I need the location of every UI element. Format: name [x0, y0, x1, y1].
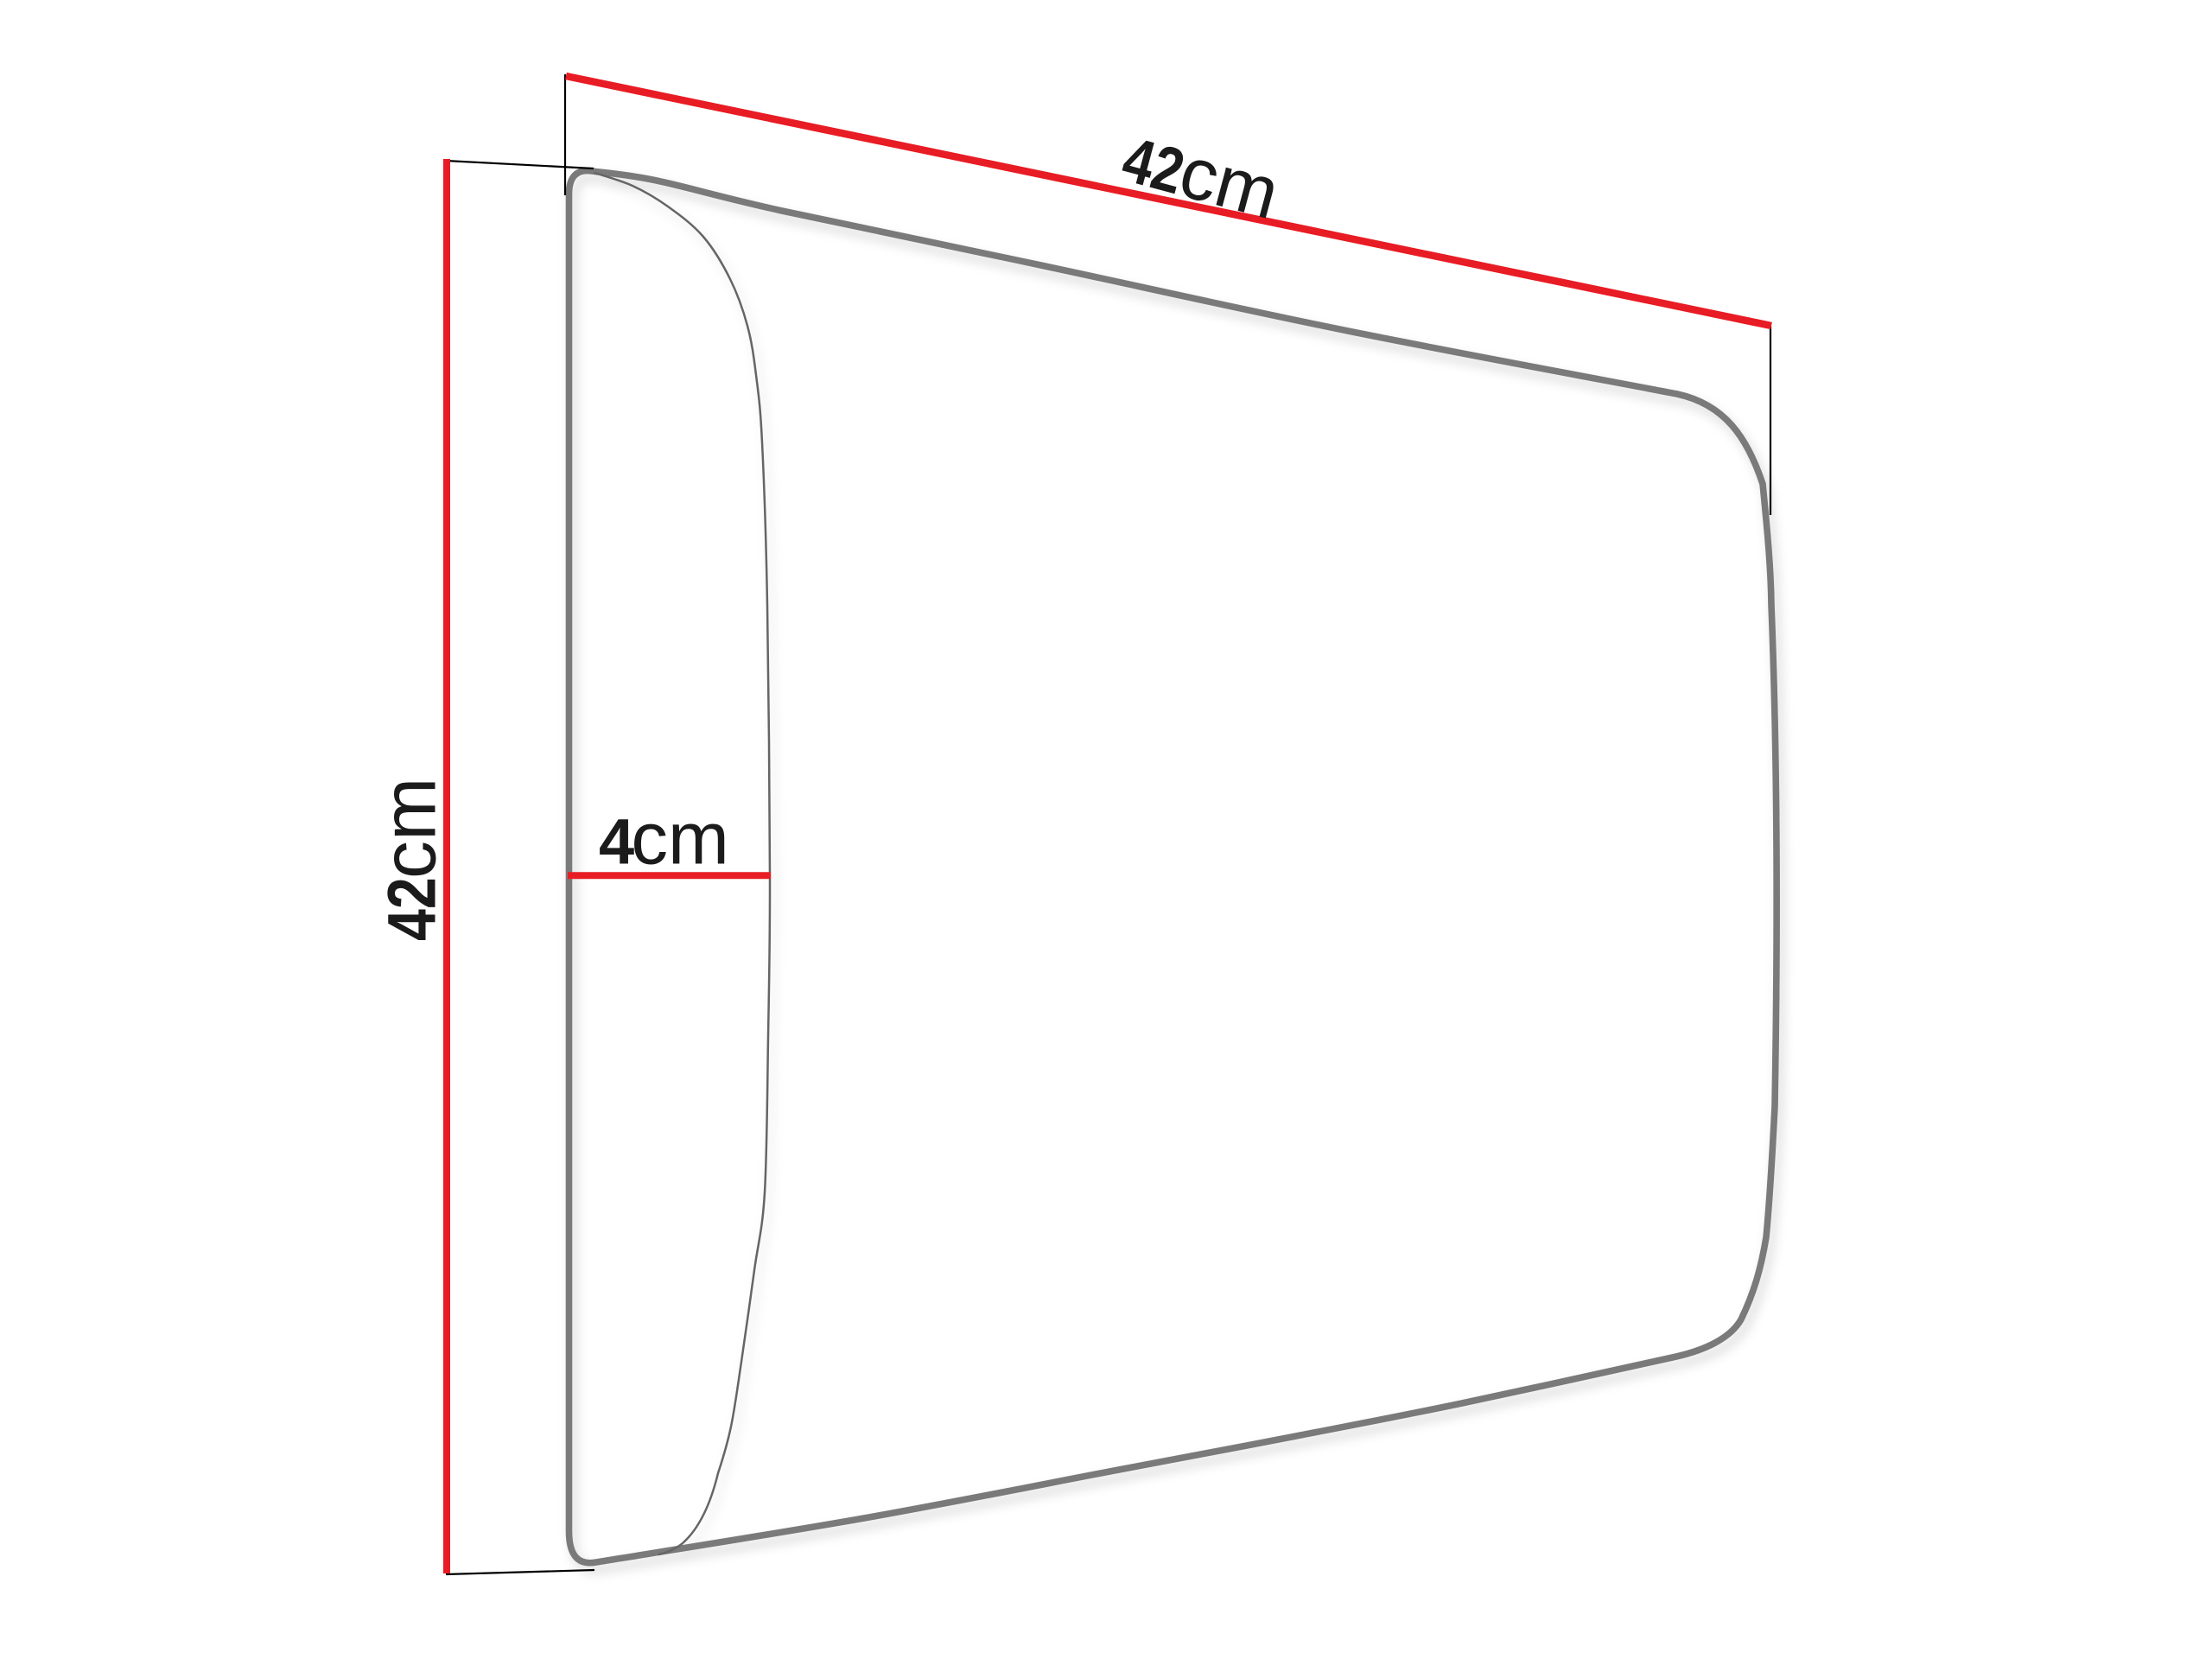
svg-text:42: 42: [374, 877, 450, 941]
svg-text:cm: cm: [1172, 130, 1287, 235]
svg-text:cm: cm: [632, 798, 729, 880]
svg-text:4: 4: [599, 806, 634, 878]
svg-text:cm: cm: [366, 778, 452, 879]
